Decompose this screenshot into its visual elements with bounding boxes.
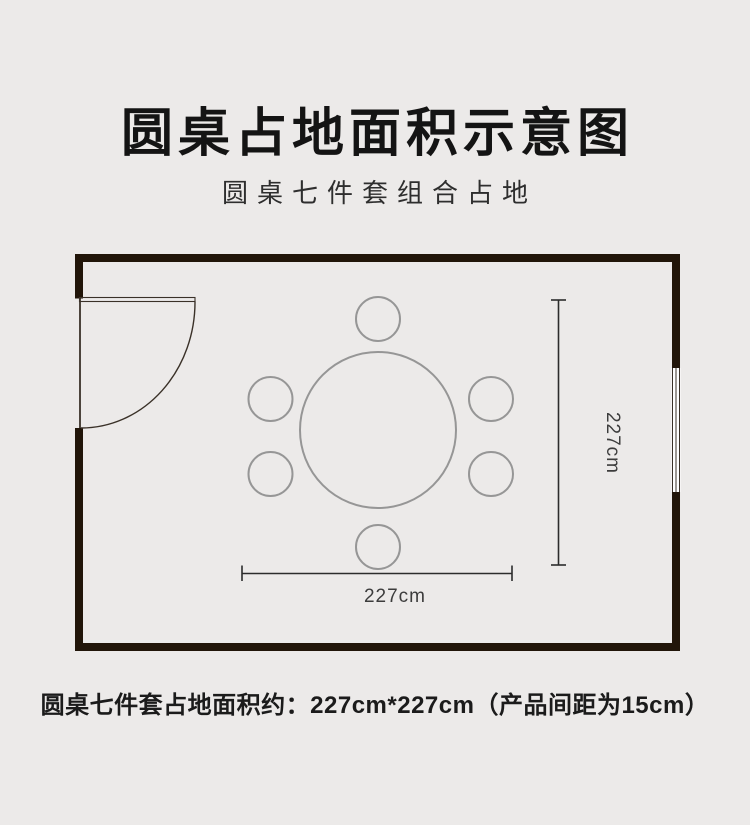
door-leaf <box>80 298 196 302</box>
chair-circle-bottom <box>356 525 400 569</box>
width-dimension-label: 227cm <box>242 586 512 608</box>
chair-circle-left-lower <box>249 452 293 496</box>
room-wall-left-upper <box>75 254 83 299</box>
chair-circle-right-lower <box>469 452 513 496</box>
room-wall-right-upper <box>672 254 680 368</box>
table-set <box>249 297 514 569</box>
footprint-caption: 圆桌七件套占地面积约：227cm*227cm（产品间距为15cm） <box>0 692 750 720</box>
chair-circle-top <box>356 297 400 341</box>
room-wall-top <box>75 254 680 262</box>
product-detail-page: 圆桌占地面积示意图 圆桌七件套组合占地 <box>0 0 750 825</box>
width-dimension <box>242 566 512 582</box>
door <box>80 298 196 429</box>
chair-circle-right-upper <box>469 377 513 421</box>
dining-table-circle <box>300 352 456 508</box>
room-wall-bottom <box>75 643 680 651</box>
door-swing-arc <box>81 302 195 429</box>
room-wall-left-lower <box>75 428 83 651</box>
chair-circle-left-upper <box>249 377 293 421</box>
window <box>672 368 681 492</box>
height-dimension <box>551 300 566 565</box>
height-dimension-label: 227cm <box>601 412 623 474</box>
room-wall-right-lower <box>672 492 680 651</box>
